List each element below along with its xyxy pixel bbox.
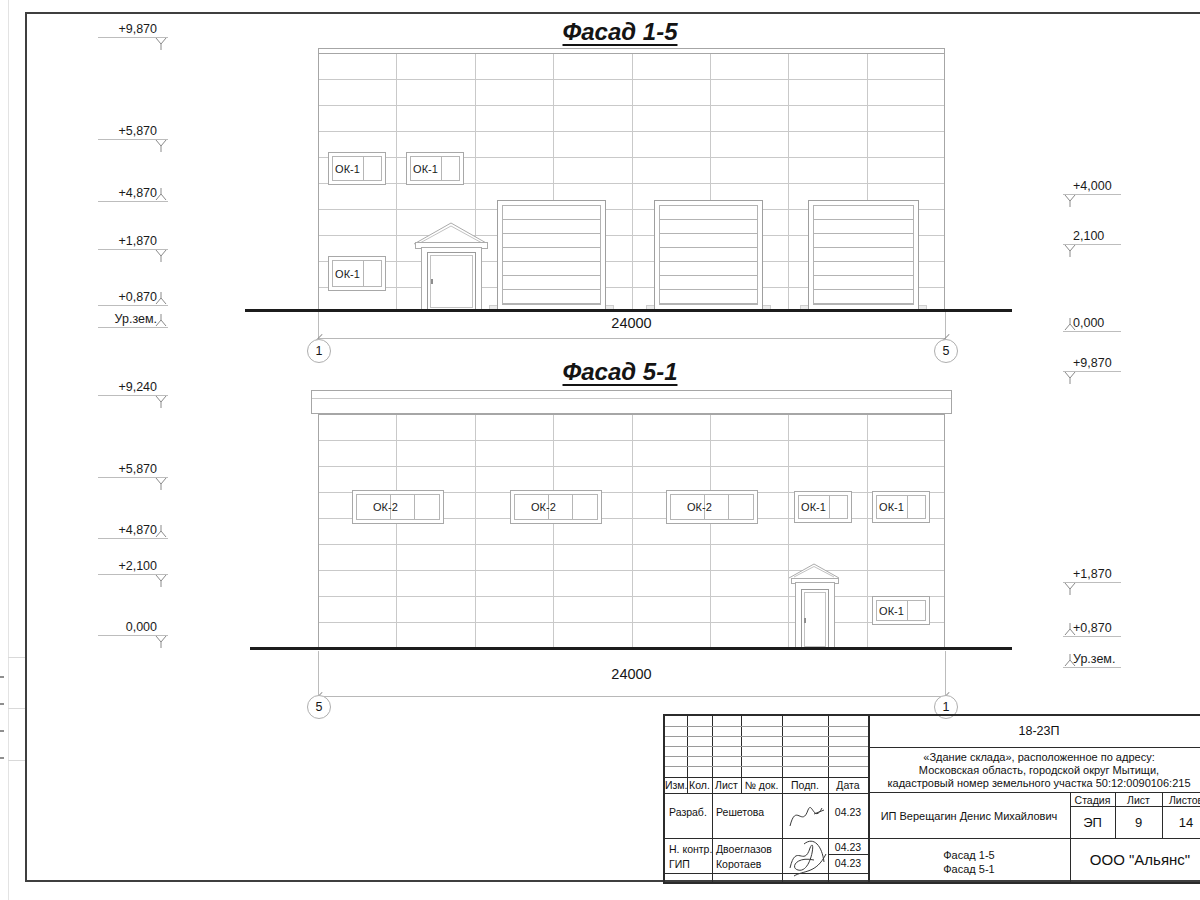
margin-line [8,657,25,658]
gate [808,200,919,310]
margin-line [8,760,25,761]
window-ok1: ОК-1 [328,152,386,185]
axis-circle: 5 [307,695,331,719]
margin-dash [0,757,4,759]
level-arrow-down-icon [1063,582,1077,595]
facade-5-1-wall [318,414,945,650]
window-ok2: ОК-2 [666,490,758,524]
facade-1-5-title: Фасад 1-5 [520,18,720,46]
gate-slats [502,205,601,305]
tb-role: Н. контр. [669,842,715,856]
level-mark: +2,100 [98,559,168,575]
tb-line [665,873,868,874]
level-arrow-down-icon [154,395,168,408]
tb-line [665,766,868,767]
level-mark: +0,870 [1063,621,1121,637]
tb-role: Разраб. [669,805,713,819]
axis-circle: 5 [934,339,958,363]
gate-slats [659,205,758,305]
level-mark: +9,240 [98,380,168,396]
tb-col-doc: № док. [741,778,782,792]
drawing-sheet: Фасад 1-5 ОК-1 ОК-1 ОК-1 [0,0,1200,900]
axis-extension-line [945,312,946,339]
window-ok1: ОК-1 [872,596,930,625]
level-arrow-up-icon [1063,318,1077,331]
level-arrow-up-icon [1063,654,1077,667]
window-mullion [572,495,573,519]
door-leaf [801,589,829,650]
tb-line [828,854,868,855]
dimension-text: 24000 [318,666,945,682]
window-label: ОК-2 [357,501,415,513]
margin-dash [0,676,4,678]
level-arrow-down-icon [1063,194,1077,207]
window-ok2: ОК-2 [510,490,602,524]
window-ok2: ОК-2 [352,490,444,524]
tb-line [665,838,868,839]
tb-line [868,838,1200,839]
dimension-line [318,696,945,697]
level-arrow-down-icon [154,37,168,50]
level-mark: +5,870 [98,124,168,140]
signature [782,834,830,880]
facade-5-1-title: Фасад 5-1 [520,358,720,386]
level-mark: +0,870 [98,290,168,306]
window-ok1: ОК-1 [872,491,930,523]
tb-role: ГИП [669,857,713,871]
tb-col-data: Дата [828,778,868,792]
window-mullion [414,495,415,519]
level-mark: 2,100 [1063,229,1121,245]
gate [654,200,763,310]
axis-circle: 1 [307,339,331,363]
level-mark: +4,870 [98,186,168,202]
level-arrow-up-icon [154,314,168,327]
level-arrow-down-icon [154,477,168,490]
title-block: Изм. Кол. Лист № док. Подп. Дата Разраб.… [663,714,1200,884]
dimension-line [318,338,945,339]
parapet-line [312,398,951,399]
tb-line [665,736,868,737]
tb-line [868,747,1200,748]
gate [497,200,606,310]
window-ok1: ОК-1 [328,256,386,291]
margin-line [8,708,25,709]
window-label: ОК-1 [409,163,441,175]
level-arrow-down-icon [154,249,168,262]
tb-sheets-value: 14 [1162,814,1200,832]
window-ok1: ОК-1 [406,152,464,185]
window-ok1: ОК-1 [794,491,852,523]
tb-col-kol: Кол. [687,778,712,792]
sheet-edge-line [8,0,9,900]
window-label: ОК-1 [797,501,829,513]
tb-sheets-label: Листов [1162,793,1200,807]
level-arrow-up-icon [154,525,168,538]
level-mark: +9,870 [98,22,168,38]
tb-name: Коротаев [716,857,780,871]
level-mark: Ур.зем. [98,312,168,328]
window-mullion [728,495,729,519]
tb-line [665,793,868,794]
door-panel [804,592,826,647]
tb-project-code: 18-23П [868,724,1200,738]
signature [784,796,828,838]
level-arrow-up-icon [154,292,168,305]
level-mark: +4,000 [1063,179,1121,195]
level-arrow-down-icon [154,635,168,648]
window-label: ОК-2 [515,501,573,513]
margin-dash [0,730,4,732]
window-label: ОК-1 [331,268,363,280]
window-label: ОК-1 [875,605,907,617]
door-panel [430,255,473,308]
tb-address-line3: кадастровый номер земельного участка 50:… [868,777,1200,790]
window-label: ОК-1 [875,501,907,513]
tb-stage-value: ЭП [1070,814,1115,832]
level-arrow-down-icon [1063,371,1077,384]
tb-sheet-value: 9 [1115,814,1162,832]
tb-line [665,756,868,757]
level-mark: +1,870 [1063,567,1121,583]
ground-line [250,647,1012,650]
level-arrow-down-icon [154,139,168,152]
level-mark: +9,870 [1063,356,1121,372]
level-mark: Ур.зем. [1063,652,1121,668]
level-mark: 0,000 [1063,316,1121,332]
window-label: ОК-2 [671,501,729,513]
tb-sheet-title-line1: Фасад 1-5 [868,848,1070,862]
margin-dash [0,703,4,705]
tb-address-line1: «Здание склада», расположенное по адресу… [868,751,1200,764]
tb-name: Решетова [716,805,780,819]
door-handle [431,279,433,284]
tb-date: 04.23 [828,840,868,854]
tb-sheet-title-line2: Фасад 5-1 [868,862,1070,876]
tb-line [665,726,868,727]
axis-extension-line [318,312,319,339]
tb-stage-label: Стадия [1070,793,1115,807]
ground-line [245,309,1012,312]
tb-address-line2: Московская область, городской округ Мыти… [868,764,1200,777]
door-leaf [427,252,476,311]
tb-date: 04.23 [828,856,868,870]
tb-company: ООО "Альянс" [1070,852,1200,868]
level-mark: +1,870 [98,234,168,250]
tb-sheet-label: Лист [1115,793,1162,807]
axis-extension-line [945,651,946,695]
tb-col-list: Лист [712,778,741,792]
level-arrow-up-icon [154,188,168,201]
door-handle [804,618,806,623]
level-mark: +4,870 [98,523,168,539]
facade-5-1-parapet [311,390,952,414]
level-mark: +5,870 [98,462,168,478]
gate-slats [813,205,914,305]
tb-col-podp: Подп. [782,778,828,792]
level-mark: 0,000 [98,620,168,636]
tb-client: ИП Верещагин Денис Михайлович [868,809,1070,823]
window-label: ОК-1 [331,163,363,175]
level-arrow-down-icon [154,574,168,587]
dimension-text: 24000 [318,315,945,331]
tb-col-izm: Изм. [665,778,687,792]
tb-name: Двоеглазов [716,842,782,856]
axis-extension-line [318,651,319,695]
tb-date: 04.23 [828,805,868,819]
tb-line [665,746,868,747]
level-arrow-up-icon [1063,623,1077,636]
level-arrow-down-icon [1063,244,1077,257]
